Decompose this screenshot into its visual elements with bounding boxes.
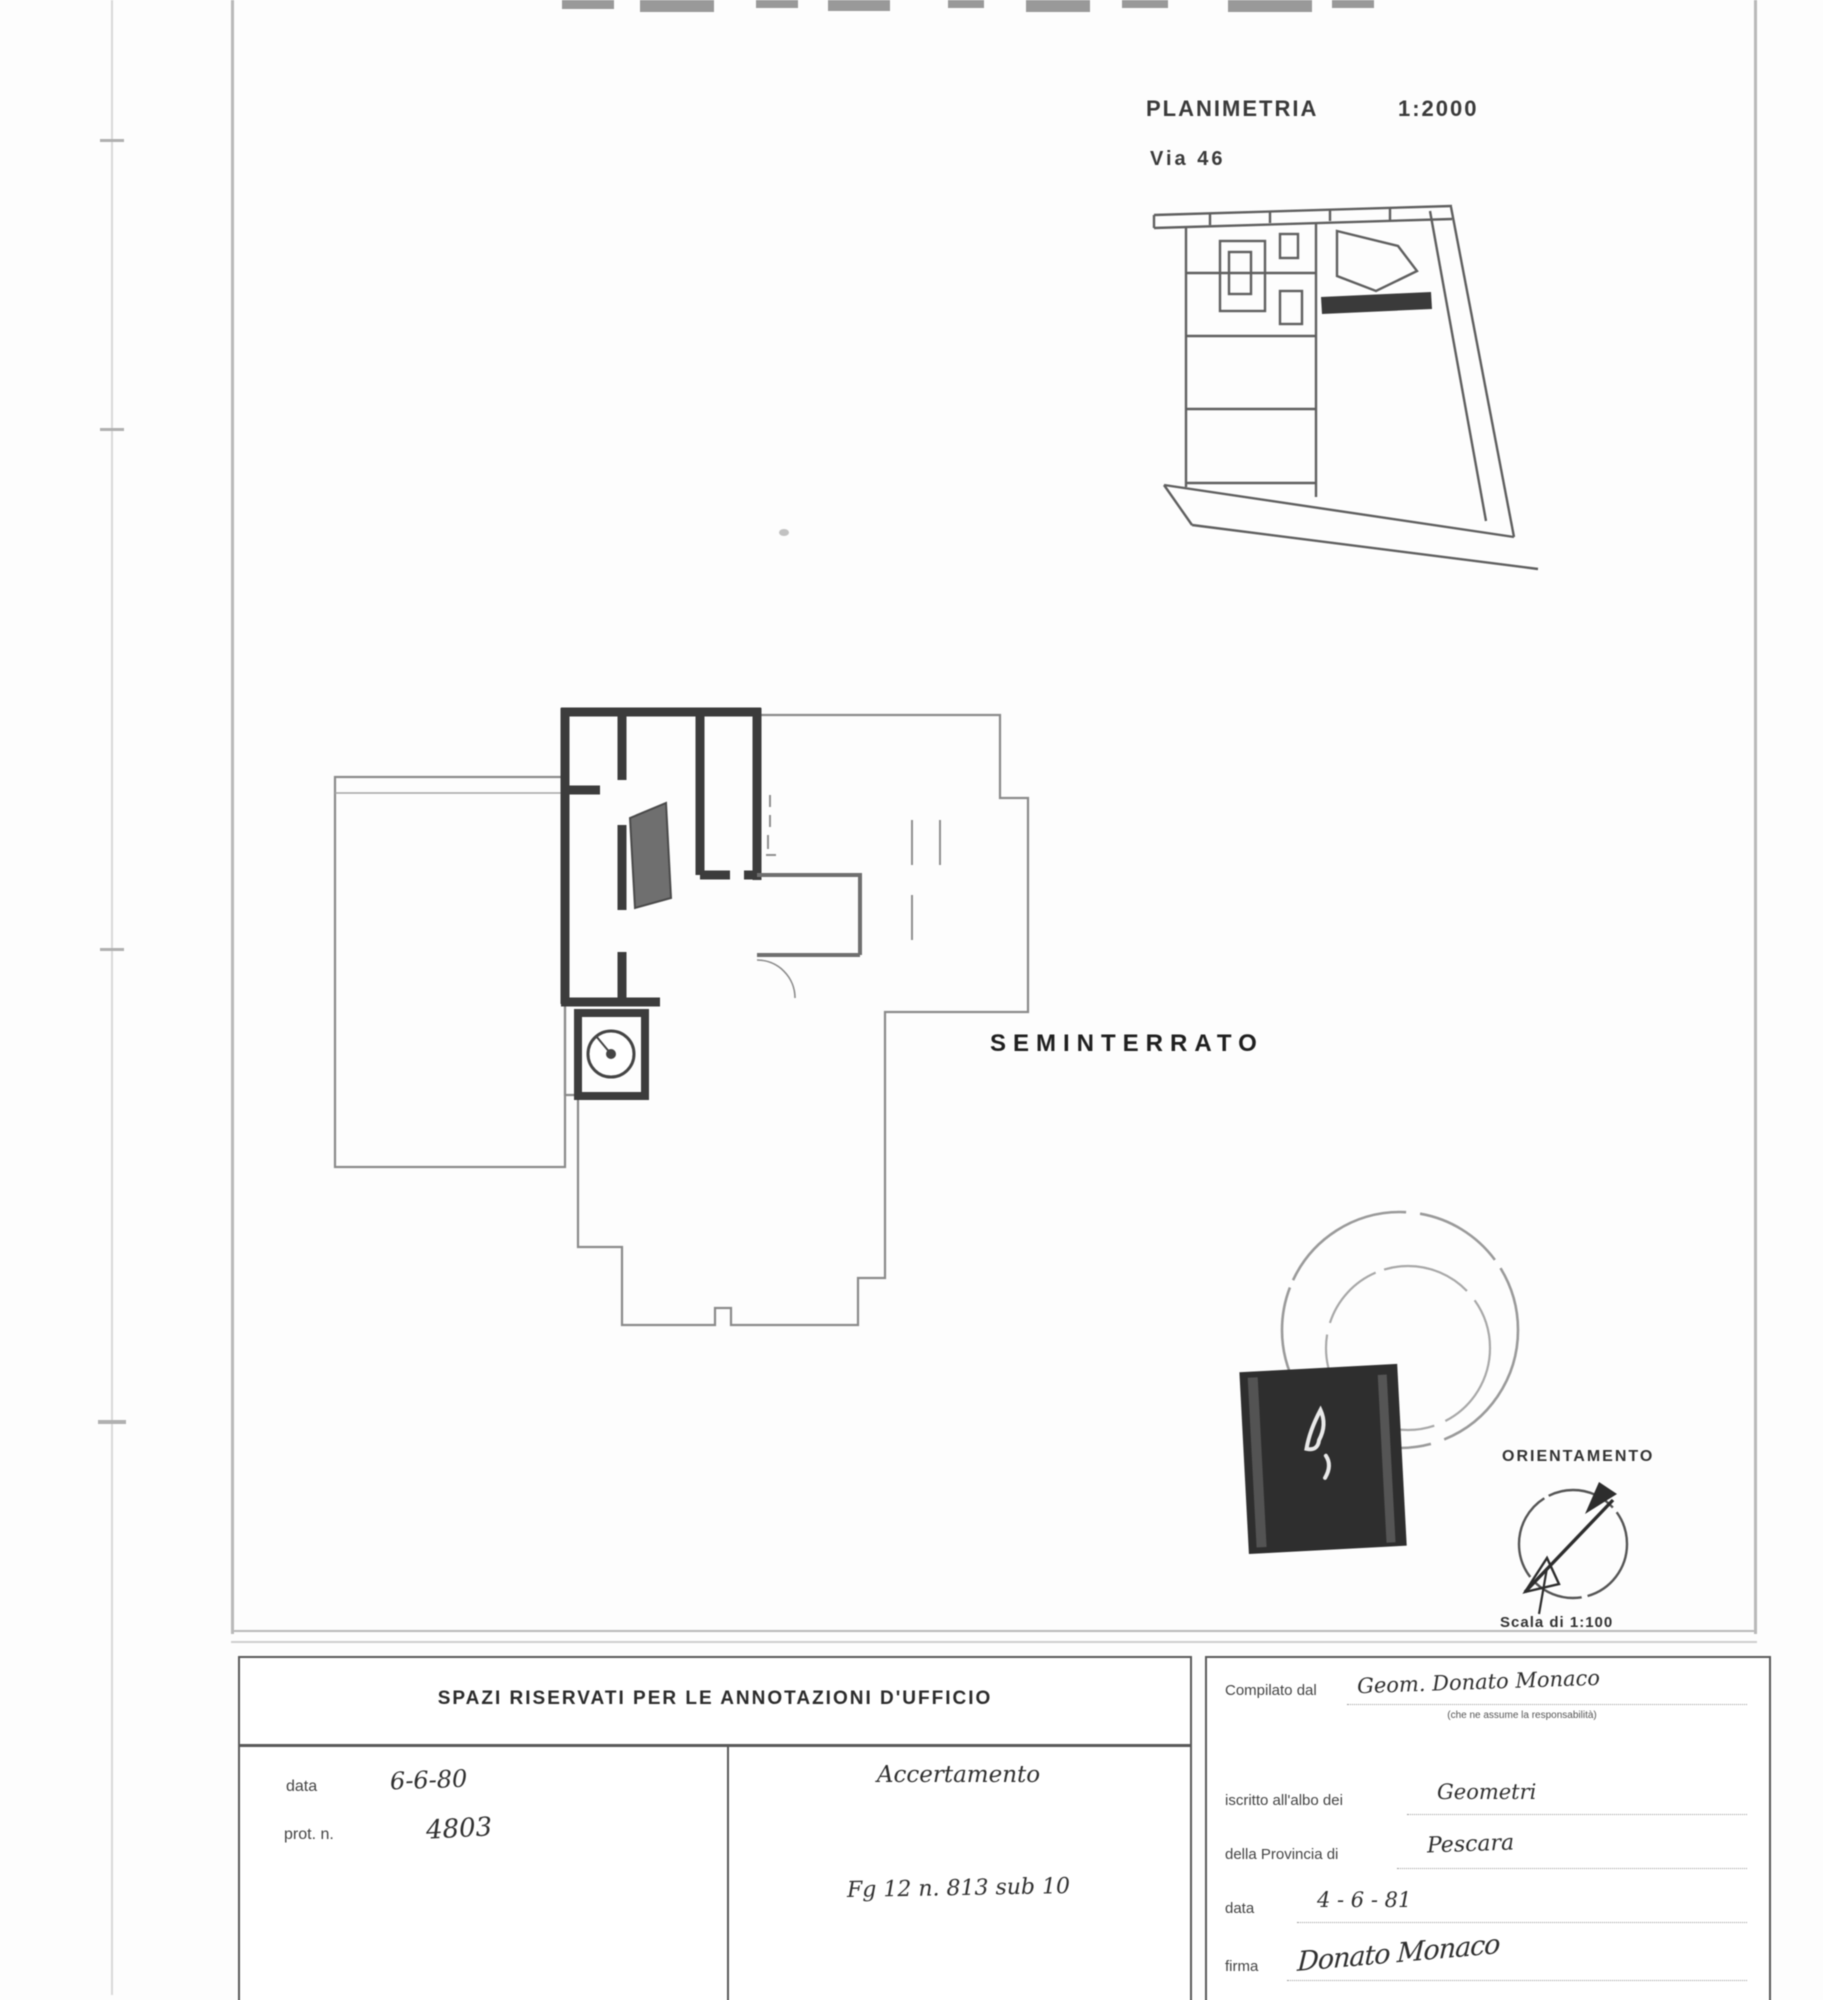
- margin-tick: [100, 948, 124, 951]
- frame-left: [231, 0, 234, 1634]
- compiled-by-value: Geom. Donato Monaco: [1357, 1666, 1601, 1698]
- parcel-reference: Fg 12 n. 813 sub 10: [727, 1872, 1190, 1905]
- tech-date-label: data: [1225, 1900, 1254, 1917]
- office-annotations-box: SPAZI RISERVATI PER LE ANNOTAZIONI D'UFF…: [238, 1656, 1192, 2000]
- registered-label: iscritto all'albo dei: [1225, 1792, 1343, 1809]
- top-edge-dash: [1122, 0, 1168, 8]
- plan-scale: 1:2000: [1398, 96, 1479, 122]
- frame-right: [1754, 0, 1757, 1634]
- site-plan-map: [1140, 185, 1570, 605]
- top-edge-dash: [640, 0, 714, 12]
- small-annotations: [766, 795, 940, 940]
- office-header-row: SPAZI RISERVATI PER LE ANNOTAZIONI D'UFF…: [240, 1658, 1190, 1747]
- side-room-walls: [757, 875, 860, 955]
- top-edge-dash: [562, 0, 614, 9]
- smudge: [779, 529, 789, 536]
- signature-value: Donato Monaco: [1297, 1929, 1501, 1978]
- top-edge-dash: [1332, 0, 1374, 8]
- province-label: della Provincia di: [1225, 1846, 1338, 1863]
- margin-tick: [98, 1420, 126, 1424]
- circular-stair: [578, 1013, 645, 1096]
- prot-label: prot. n.: [284, 1826, 334, 1844]
- date-value: 6-6-80: [390, 1765, 468, 1796]
- office-header-text: SPAZI RISERVATI PER LE ANNOTAZIONI D'UFF…: [240, 1688, 1190, 1710]
- compass-icon: [1495, 1472, 1655, 1622]
- scanned-cadastral-plan-page: PLANIMETRIA 1:2000 Via 46: [0, 0, 1823, 2000]
- rule-line: [1287, 1980, 1747, 1981]
- margin-tick: [100, 428, 124, 431]
- registered-value: Geometri: [1437, 1780, 1536, 1804]
- tech-date-value: 4 - 6 - 81: [1317, 1888, 1411, 1912]
- top-edge-dash: [756, 0, 798, 8]
- top-edge-dash: [1228, 0, 1312, 12]
- door-arc: [757, 960, 795, 998]
- plan-title: PLANIMETRIA: [1146, 96, 1318, 122]
- province-value: Pescara: [1427, 1830, 1515, 1858]
- floor-plan-drawing: [300, 640, 1100, 1360]
- rule-line: [1407, 1814, 1747, 1815]
- highlighted-building: [1321, 292, 1432, 314]
- orientation-label: ORIENTAMENTO: [1502, 1448, 1654, 1466]
- dark-stamp-block: [1239, 1364, 1406, 1554]
- floor-label: SEMINTERRATO: [990, 1030, 1264, 1058]
- frame-bottom-inner: [231, 1641, 1757, 1643]
- top-edge-dash: [828, 0, 890, 11]
- prot-value: 4803: [425, 1812, 493, 1845]
- margin-line: [111, 0, 113, 1995]
- signature-label: firma: [1225, 1958, 1258, 1975]
- rule-line: [1397, 1868, 1747, 1869]
- rule-line: [1297, 1922, 1747, 1923]
- sheet: PLANIMETRIA 1:2000 Via 46: [0, 0, 1823, 2000]
- middle-cell-title: Accertamento: [727, 1762, 1190, 1788]
- rule-line: [1347, 1704, 1747, 1705]
- top-edge-dash: [1026, 0, 1090, 12]
- margin-tick: [100, 139, 124, 142]
- stair-shaft: [630, 803, 671, 908]
- orientation-scale: Scala di 1:100: [1500, 1614, 1613, 1631]
- street-label: Via 46: [1150, 148, 1225, 171]
- annex-outline: [335, 777, 565, 1167]
- compiled-by-note: (che ne assume la responsabilità): [1357, 1710, 1687, 1721]
- technician-box: Compilato dal Geom. Donato Monaco (che n…: [1205, 1656, 1771, 2000]
- top-edge-dash: [948, 0, 984, 8]
- date-label: data: [286, 1778, 317, 1796]
- compiled-by-label: Compilato dal: [1225, 1682, 1317, 1699]
